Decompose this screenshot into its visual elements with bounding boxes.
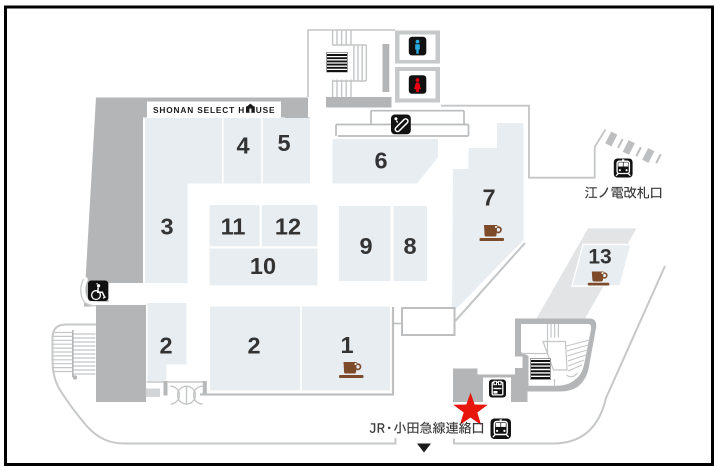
svg-text:4: 4 (236, 133, 249, 159)
svg-text:3: 3 (160, 214, 173, 240)
svg-text:9: 9 (359, 233, 372, 259)
svg-text:8: 8 (403, 233, 416, 259)
svg-text:7: 7 (482, 185, 495, 211)
svg-text:12: 12 (275, 214, 301, 240)
svg-text:USE: USE (256, 105, 276, 115)
svg-text:2: 2 (247, 333, 260, 359)
svg-text:6: 6 (374, 148, 387, 174)
svg-text:SHONAN SELECT H: SHONAN SELECT H (153, 105, 245, 115)
svg-text:11: 11 (221, 214, 246, 240)
svg-text:5: 5 (277, 130, 290, 156)
svg-text:13: 13 (588, 246, 611, 269)
svg-text:2: 2 (159, 333, 172, 359)
svg-text:1: 1 (340, 332, 353, 358)
svg-text:10: 10 (250, 253, 276, 279)
